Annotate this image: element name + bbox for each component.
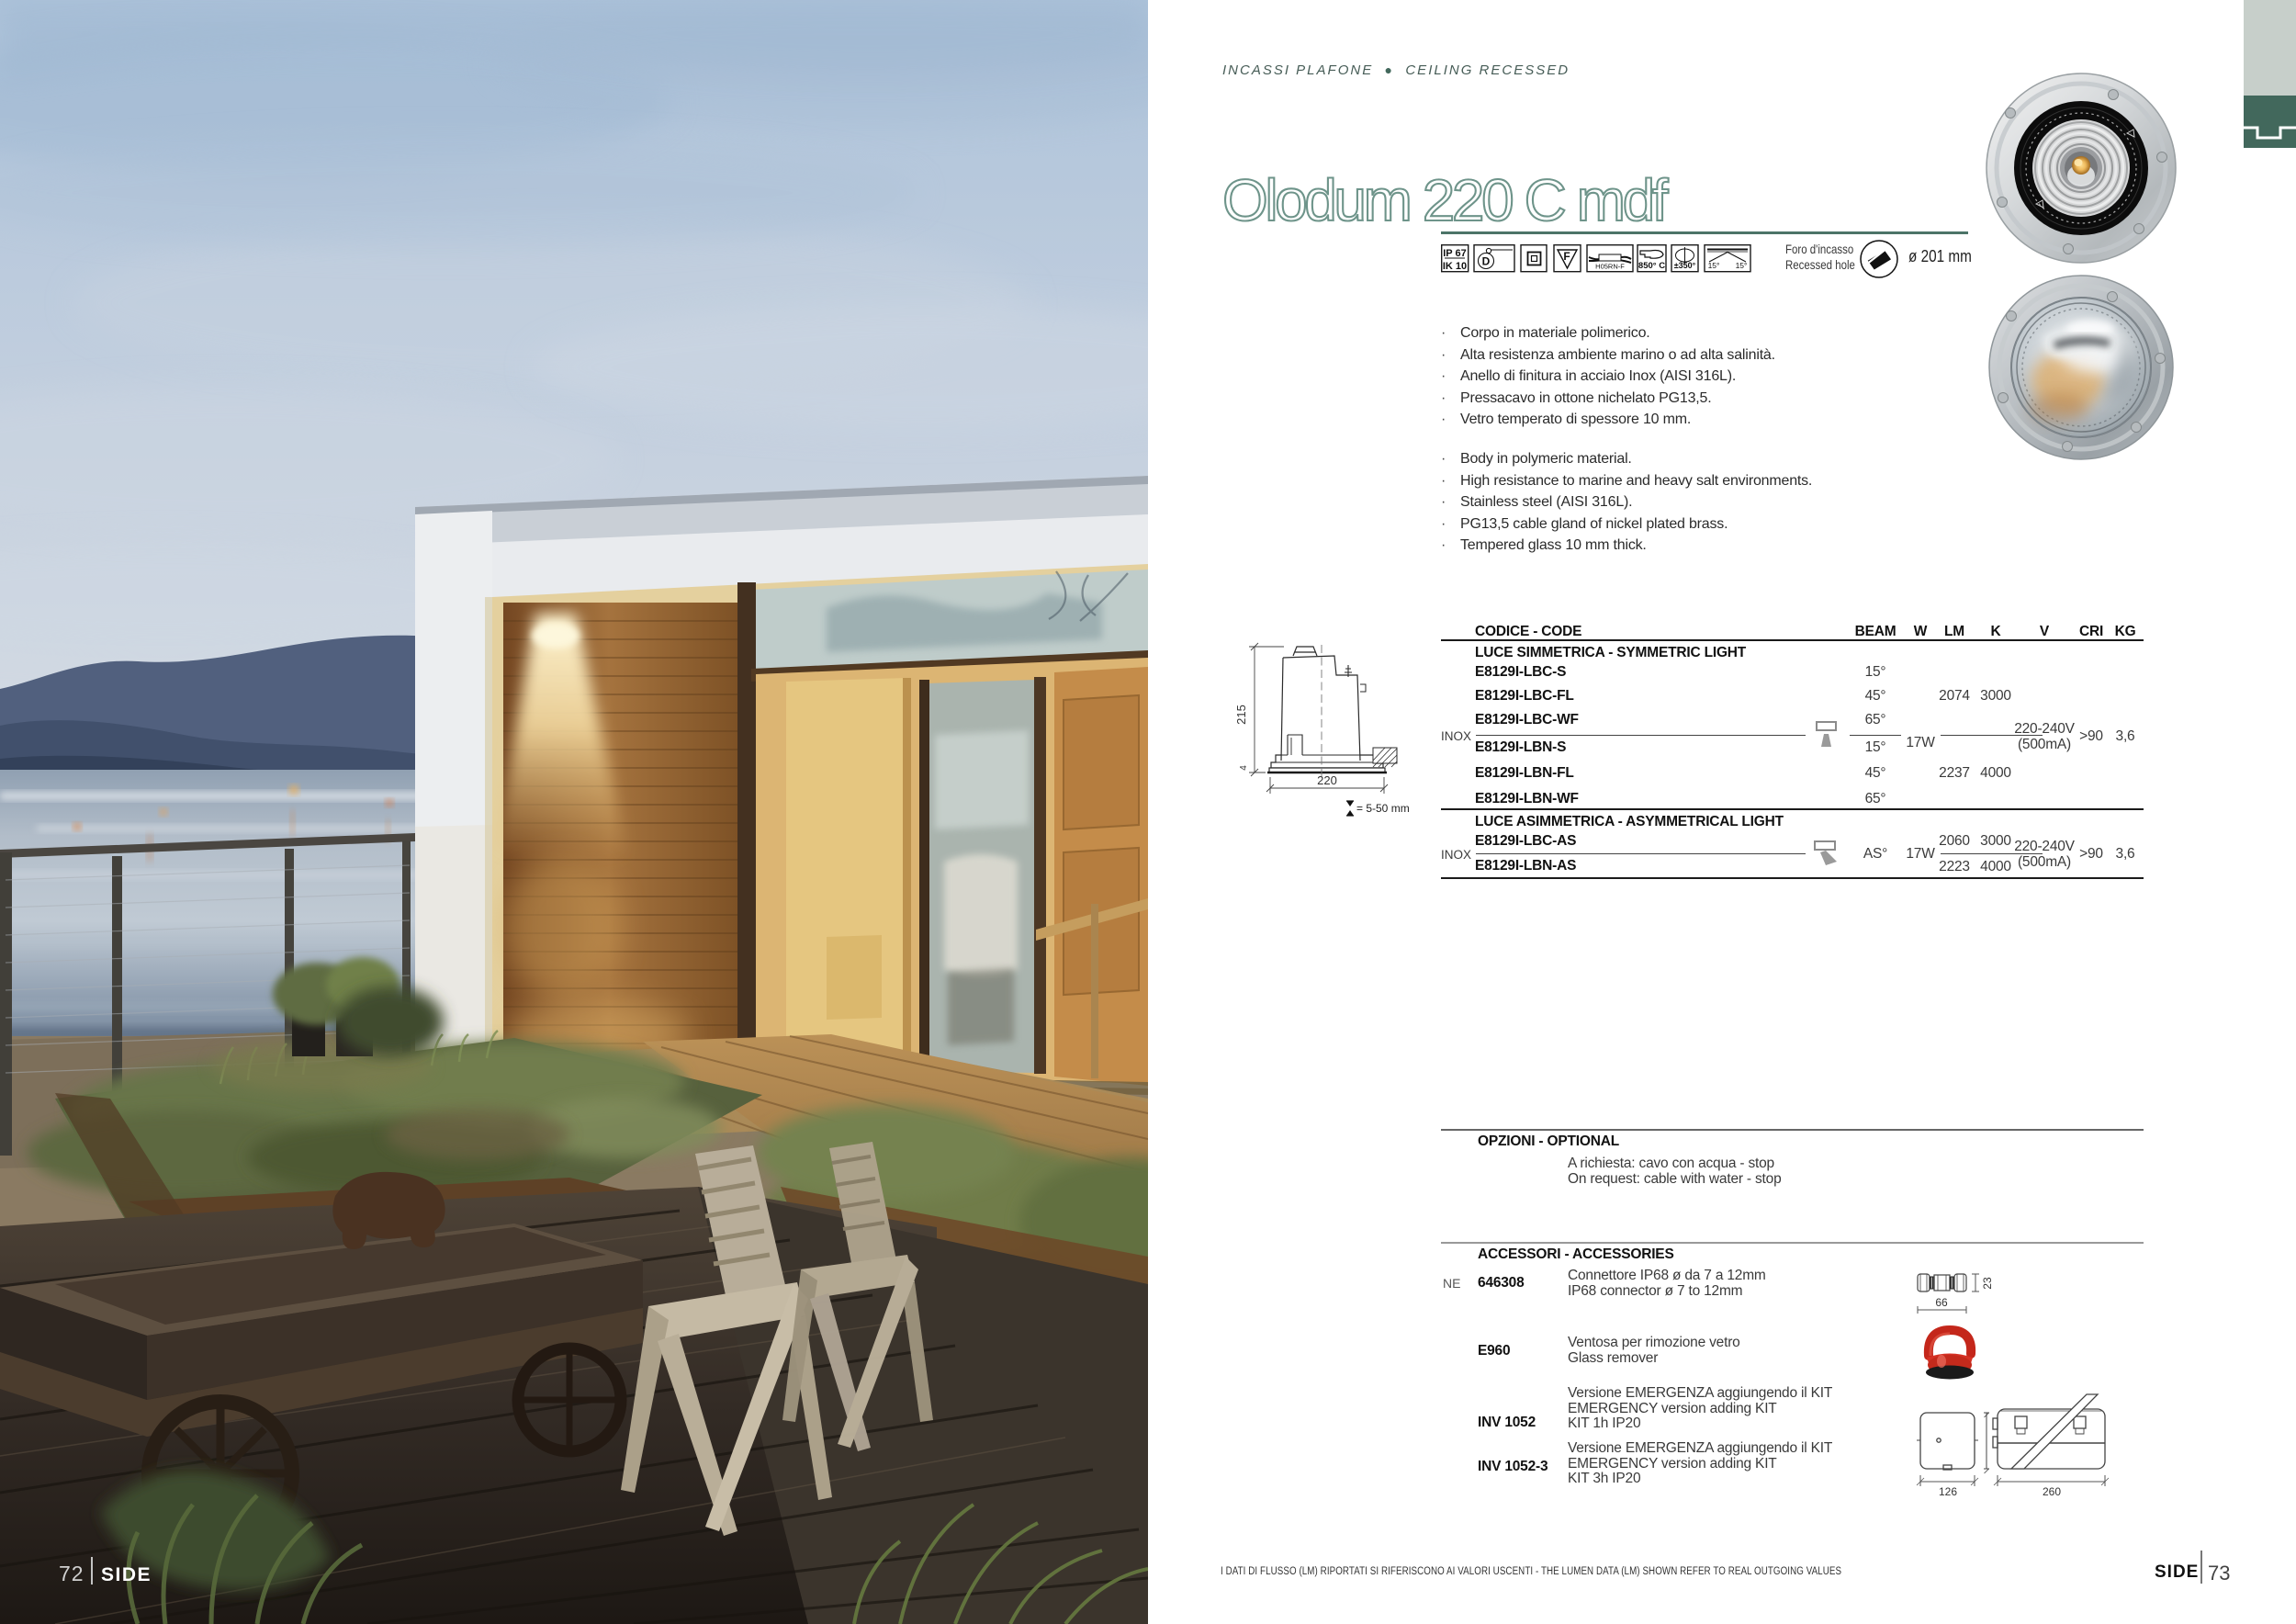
- svg-text:72: 72: [59, 1562, 84, 1585]
- svg-text:IK 10: IK 10: [1443, 261, 1467, 272]
- svg-text:= 5-50 mm: = 5-50 mm: [1356, 802, 1410, 815]
- svg-text:IP 67: IP 67: [1443, 248, 1467, 259]
- svg-text:15°: 15°: [1736, 261, 1748, 270]
- svg-text:260: 260: [2043, 1485, 2061, 1498]
- svg-text:4: 4: [1239, 765, 1249, 771]
- svg-text:66: 66: [1935, 1296, 1948, 1309]
- svg-text:850° C: 850° C: [1638, 261, 1665, 271]
- svg-text:220: 220: [1317, 773, 1337, 787]
- svg-text:SIDE: SIDE: [101, 1564, 152, 1585]
- svg-text:126: 126: [1939, 1485, 1957, 1498]
- svg-text:Olodum 220 C mdf: Olodum 220 C mdf: [1222, 167, 1669, 233]
- svg-text:23: 23: [1981, 1277, 1994, 1290]
- svg-text:15°: 15°: [1708, 261, 1720, 270]
- svg-text:H05RN-F: H05RN-F: [1595, 263, 1625, 271]
- svg-text:D: D: [1482, 255, 1491, 268]
- svg-text:215: 215: [1234, 705, 1248, 725]
- svg-text:±350°: ±350°: [1674, 261, 1696, 270]
- svg-text:F: F: [1563, 250, 1570, 263]
